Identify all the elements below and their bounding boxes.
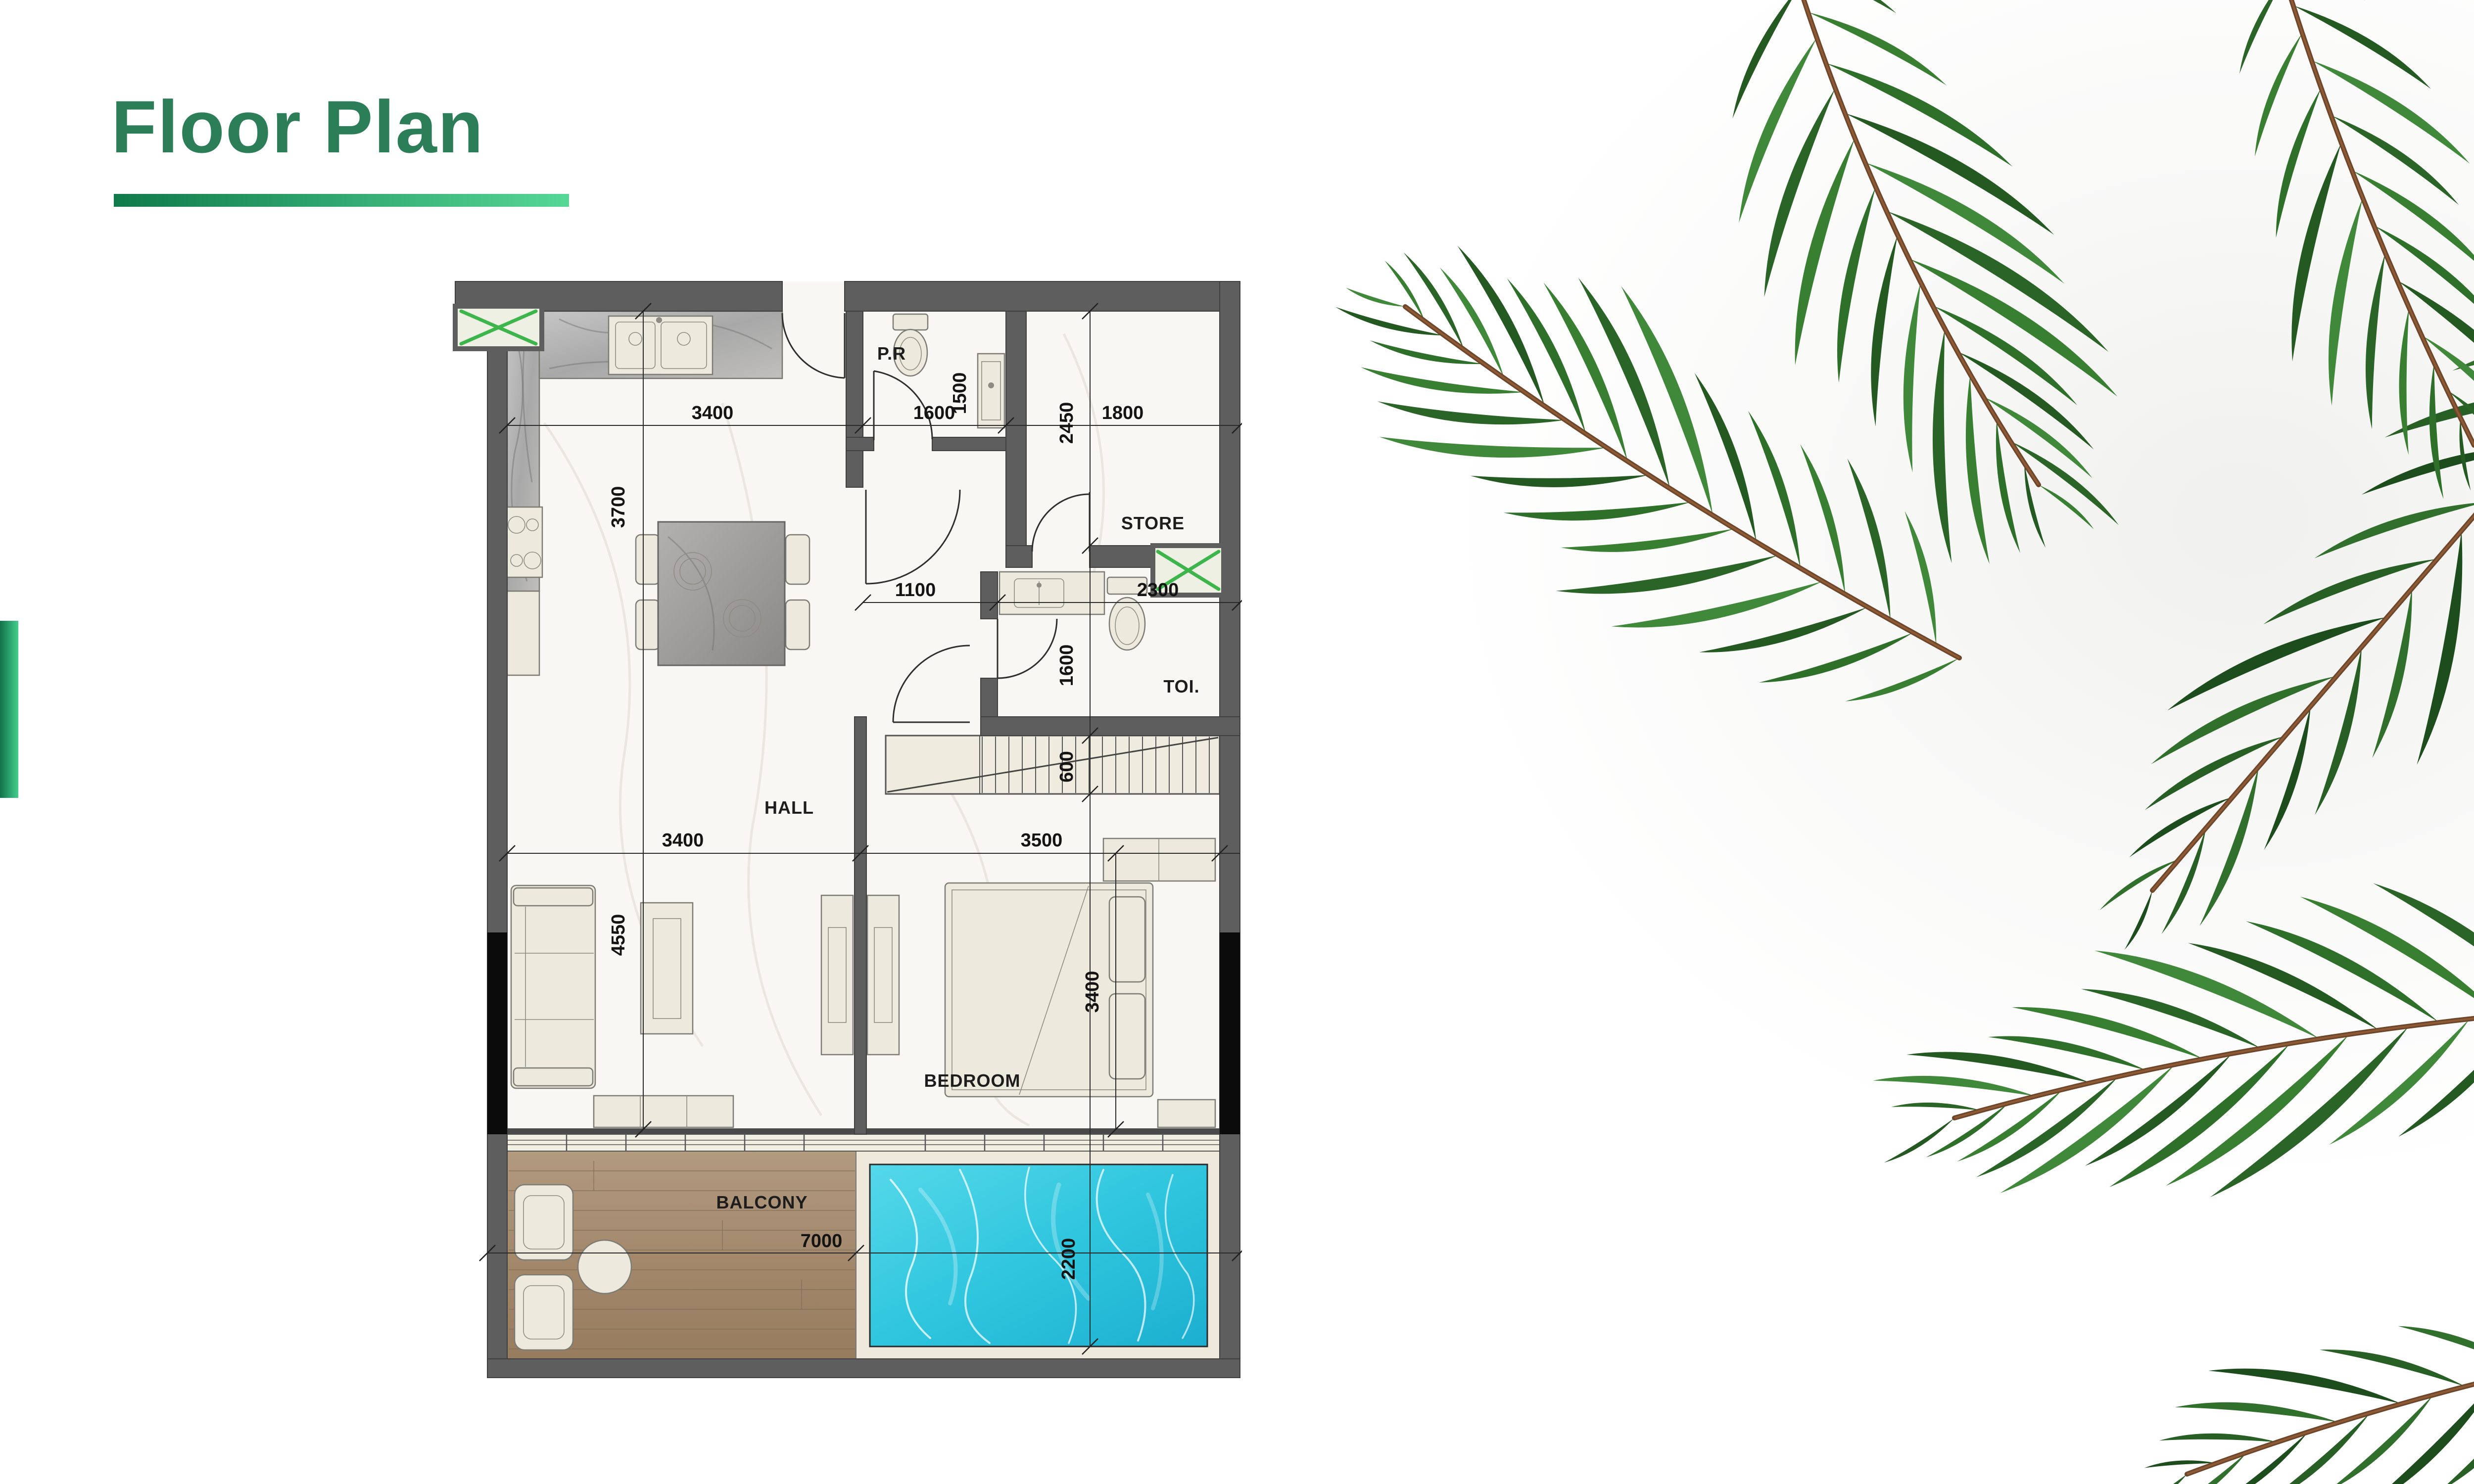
nightstand [1158,1100,1215,1127]
pillow [1109,994,1145,1079]
toi-vanity [999,572,1104,614]
label-toilet: TOI. [1163,676,1199,696]
dim-bedroom-w: 3500 [1021,830,1063,851]
palm-leaves [1286,0,2474,1484]
palm-frond [1335,246,1959,701]
dim-hall-w: 3400 [662,830,704,851]
dim-balcony-w: 7000 [801,1231,843,1252]
label-hall: HALL [764,797,814,818]
wall-corridor-left [846,451,863,487]
label-store: STORE [1121,513,1185,533]
dining-chair [786,535,809,584]
dim-pool-h: 2200 [1058,1238,1079,1280]
bed [945,883,1153,1097]
left-accent-bar [0,621,18,798]
wall-toi-left-a [981,572,998,619]
bedroom-dresser [1103,838,1215,881]
kitchen-sink [609,316,713,374]
label-powder-room: P.R [877,343,906,364]
tv-console-bedroom [867,895,899,1055]
wall-pr-left [846,311,863,451]
palm-frond [2239,0,2474,499]
dining-table [636,522,809,665]
pillow [1109,897,1145,982]
tv-console-hall [821,895,853,1055]
dim-kitchen-h: 3700 [608,486,629,528]
dim-stairs-w: 600 [1056,751,1077,782]
dim-store-w: 1800 [1102,403,1144,423]
dim-hall-h: 4550 [608,914,629,956]
round-table [578,1240,631,1294]
wall-pr-bottom-a [846,437,874,451]
dining-chair [636,600,660,649]
palm-frond [2143,1288,2474,1484]
wall-right [1220,281,1240,1378]
kitchen-cabinet [507,591,539,675]
hall-sideboard [594,1096,733,1127]
stove [505,507,542,577]
dim-kitchen-w: 3400 [692,403,734,423]
palm-stem [1791,0,2039,485]
palm-frond [1873,883,2474,1198]
palm-frond [1733,0,2119,564]
title-underline [114,194,569,207]
dim-toi-h: 1600 [1056,645,1077,687]
page-title: Floor Plan [111,84,484,170]
wall-store-bottom-a [1006,546,1032,567]
label-bedroom: BEDROOM [924,1070,1021,1091]
wall-store-bottom-b [1090,546,1153,567]
wall-store-left [1006,311,1026,552]
dim-pr-w: 1600 [913,403,955,423]
wall-pr-bottom-b [932,437,1006,451]
palm-frond [2100,257,2474,950]
toilet-tank [893,314,928,330]
dim-pr-h: 1500 [950,372,970,415]
wall-partition-hall-bedroom [855,717,866,1134]
dim-corridor-w: 1100 [895,580,936,601]
stairs [886,736,1220,794]
column-left [487,932,507,1134]
sofa [511,885,595,1088]
coffee-table [641,903,693,1034]
toi-bowl [1109,598,1145,650]
dim-toi-w: 2300 [1137,580,1179,601]
wall-left [487,349,507,1378]
dim-bedroom-h: 3400 [1082,971,1103,1013]
label-balcony: BALCONY [716,1192,808,1212]
slide: Floor Plan [0,0,2474,1484]
shaft-marker-top-left [455,306,542,349]
dining-chair [786,600,809,649]
dim-store-h: 2450 [1056,402,1077,444]
palm-stem [2276,0,2474,445]
wall-bottom [487,1359,1240,1378]
wall-toi-bottom [981,717,1240,736]
column-right [1220,932,1240,1134]
floor-plan: 3400 1600 1800 1500 2450 3700 1100 2300 … [445,275,1242,1380]
wall-top-right [845,281,1240,311]
dining-chair [636,535,660,584]
